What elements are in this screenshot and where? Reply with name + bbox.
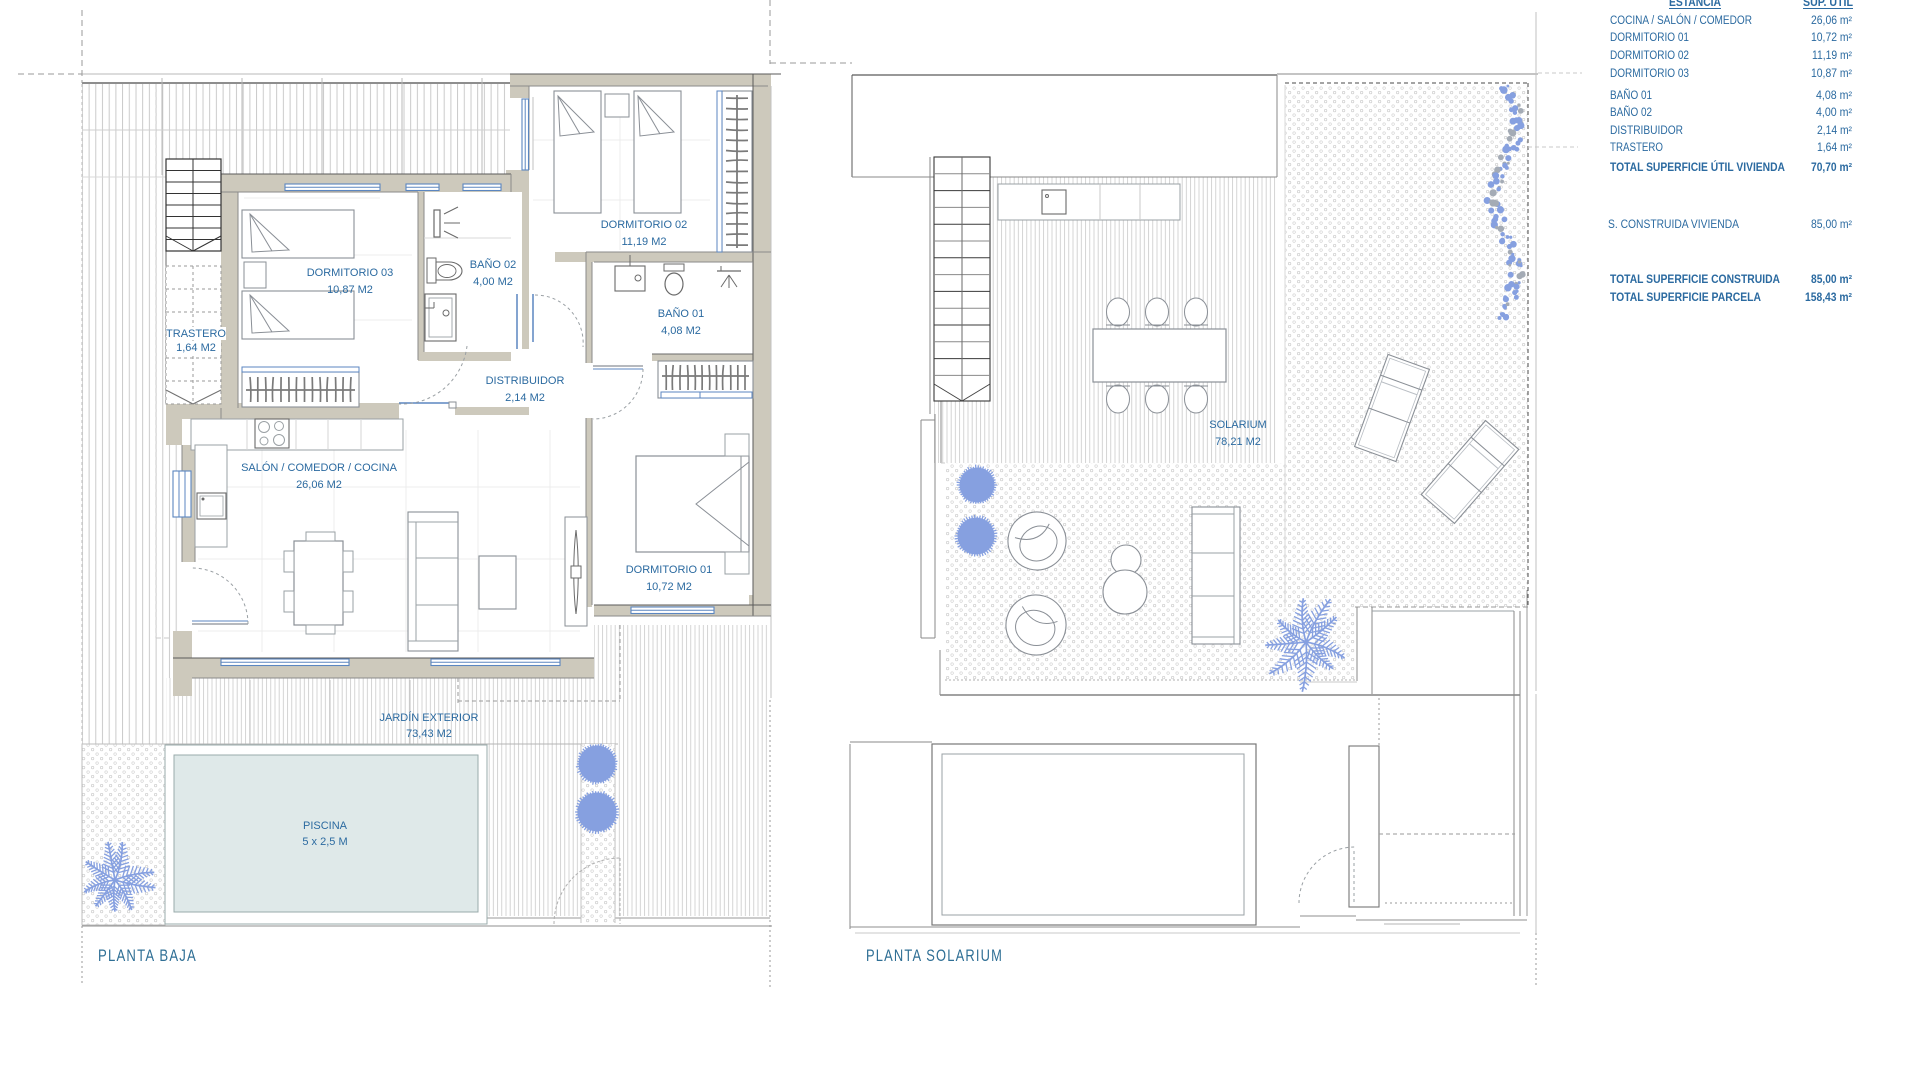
svg-text:TOTAL SUPERFICIE CONSTRUIDA: TOTAL SUPERFICIE CONSTRUIDA xyxy=(1610,274,1780,286)
svg-text:DORMITORIO 03: DORMITORIO 03 xyxy=(1610,68,1689,80)
svg-text:TOTAL SUPERFICIE PARCELA: TOTAL SUPERFICIE PARCELA xyxy=(1610,292,1761,304)
svg-text:BAÑO 02: BAÑO 02 xyxy=(470,258,516,271)
svg-text:DORMITORIO 01: DORMITORIO 01 xyxy=(1610,32,1689,44)
svg-text:5 x 2,5 M: 5 x 2,5 M xyxy=(302,836,347,848)
svg-text:COCINA / SALÓN / COMEDOR: COCINA / SALÓN / COMEDOR xyxy=(1610,14,1752,27)
svg-text:70,70 m²: 70,70 m² xyxy=(1811,162,1852,174)
svg-text:BAÑO 02: BAÑO 02 xyxy=(1610,106,1652,119)
svg-text:S. CONSTRUIDA VIVIENDA: S. CONSTRUIDA VIVIENDA xyxy=(1608,219,1739,231)
svg-text:BAÑO 01: BAÑO 01 xyxy=(1610,89,1652,102)
svg-text:JARDÍN EXTERIOR: JARDÍN EXTERIOR xyxy=(379,711,478,724)
svg-text:PLANTA BAJA: PLANTA BAJA xyxy=(98,947,197,965)
svg-text:DORMITORIO 01: DORMITORIO 01 xyxy=(626,564,713,576)
svg-text:ESTANCIA: ESTANCIA xyxy=(1669,0,1721,9)
svg-text:73,43 M2: 73,43 M2 xyxy=(406,728,452,740)
svg-text:2,14 m²: 2,14 m² xyxy=(1817,125,1852,137)
svg-text:4,08 M2: 4,08 M2 xyxy=(661,325,701,337)
svg-text:4,08 m²: 4,08 m² xyxy=(1816,90,1852,102)
svg-text:DORMITORIO 02: DORMITORIO 02 xyxy=(1610,50,1689,62)
svg-text:85,00 m²: 85,00 m² xyxy=(1811,219,1852,231)
svg-text:TRASTERO: TRASTERO xyxy=(1610,142,1663,154)
svg-text:26,06 m²: 26,06 m² xyxy=(1811,15,1852,27)
svg-text:2,14 M2: 2,14 M2 xyxy=(505,392,545,404)
svg-text:10,87 m²: 10,87 m² xyxy=(1811,68,1852,80)
svg-text:DORMITORIO 02: DORMITORIO 02 xyxy=(601,219,688,231)
svg-text:11,19 m²: 11,19 m² xyxy=(1812,50,1852,62)
svg-text:10,72 M2: 10,72 M2 xyxy=(646,581,692,593)
svg-text:85,00 m²: 85,00 m² xyxy=(1811,274,1852,286)
svg-text:4,00 M2: 4,00 M2 xyxy=(473,276,513,288)
svg-text:TOTAL SUPERFICIE ÚTIL VIVIENDA: TOTAL SUPERFICIE ÚTIL VIVIENDA xyxy=(1610,161,1785,174)
svg-text:DORMITORIO 03: DORMITORIO 03 xyxy=(307,267,394,279)
svg-text:SALÓN / COMEDOR / COCINA: SALÓN / COMEDOR / COCINA xyxy=(241,461,398,474)
svg-text:1,64 M2: 1,64 M2 xyxy=(176,342,216,354)
svg-text:SUP. ÚTIL: SUP. ÚTIL xyxy=(1803,0,1853,9)
svg-text:DISTRIBUIDOR: DISTRIBUIDOR xyxy=(486,375,565,387)
svg-text:BAÑO 01: BAÑO 01 xyxy=(658,307,704,320)
svg-text:1,64 m²: 1,64 m² xyxy=(1817,142,1852,154)
svg-text:TRASTERO: TRASTERO xyxy=(166,328,226,340)
svg-text:DISTRIBUIDOR: DISTRIBUIDOR xyxy=(1610,125,1683,137)
svg-text:10,87 M2: 10,87 M2 xyxy=(327,284,373,296)
svg-text:26,06 M2: 26,06 M2 xyxy=(296,479,342,491)
svg-text:78,21 M2: 78,21 M2 xyxy=(1215,436,1261,448)
svg-text:158,43 m²: 158,43 m² xyxy=(1805,292,1852,304)
svg-text:PISCINA: PISCINA xyxy=(303,820,348,832)
svg-text:10,72 m²: 10,72 m² xyxy=(1811,32,1852,44)
svg-text:4,00 m²: 4,00 m² xyxy=(1816,107,1852,119)
svg-text:11,19 M2: 11,19 M2 xyxy=(621,236,666,248)
svg-text:SOLARIUM: SOLARIUM xyxy=(1209,419,1266,431)
svg-text:PLANTA SOLARIUM: PLANTA SOLARIUM xyxy=(866,947,1003,965)
